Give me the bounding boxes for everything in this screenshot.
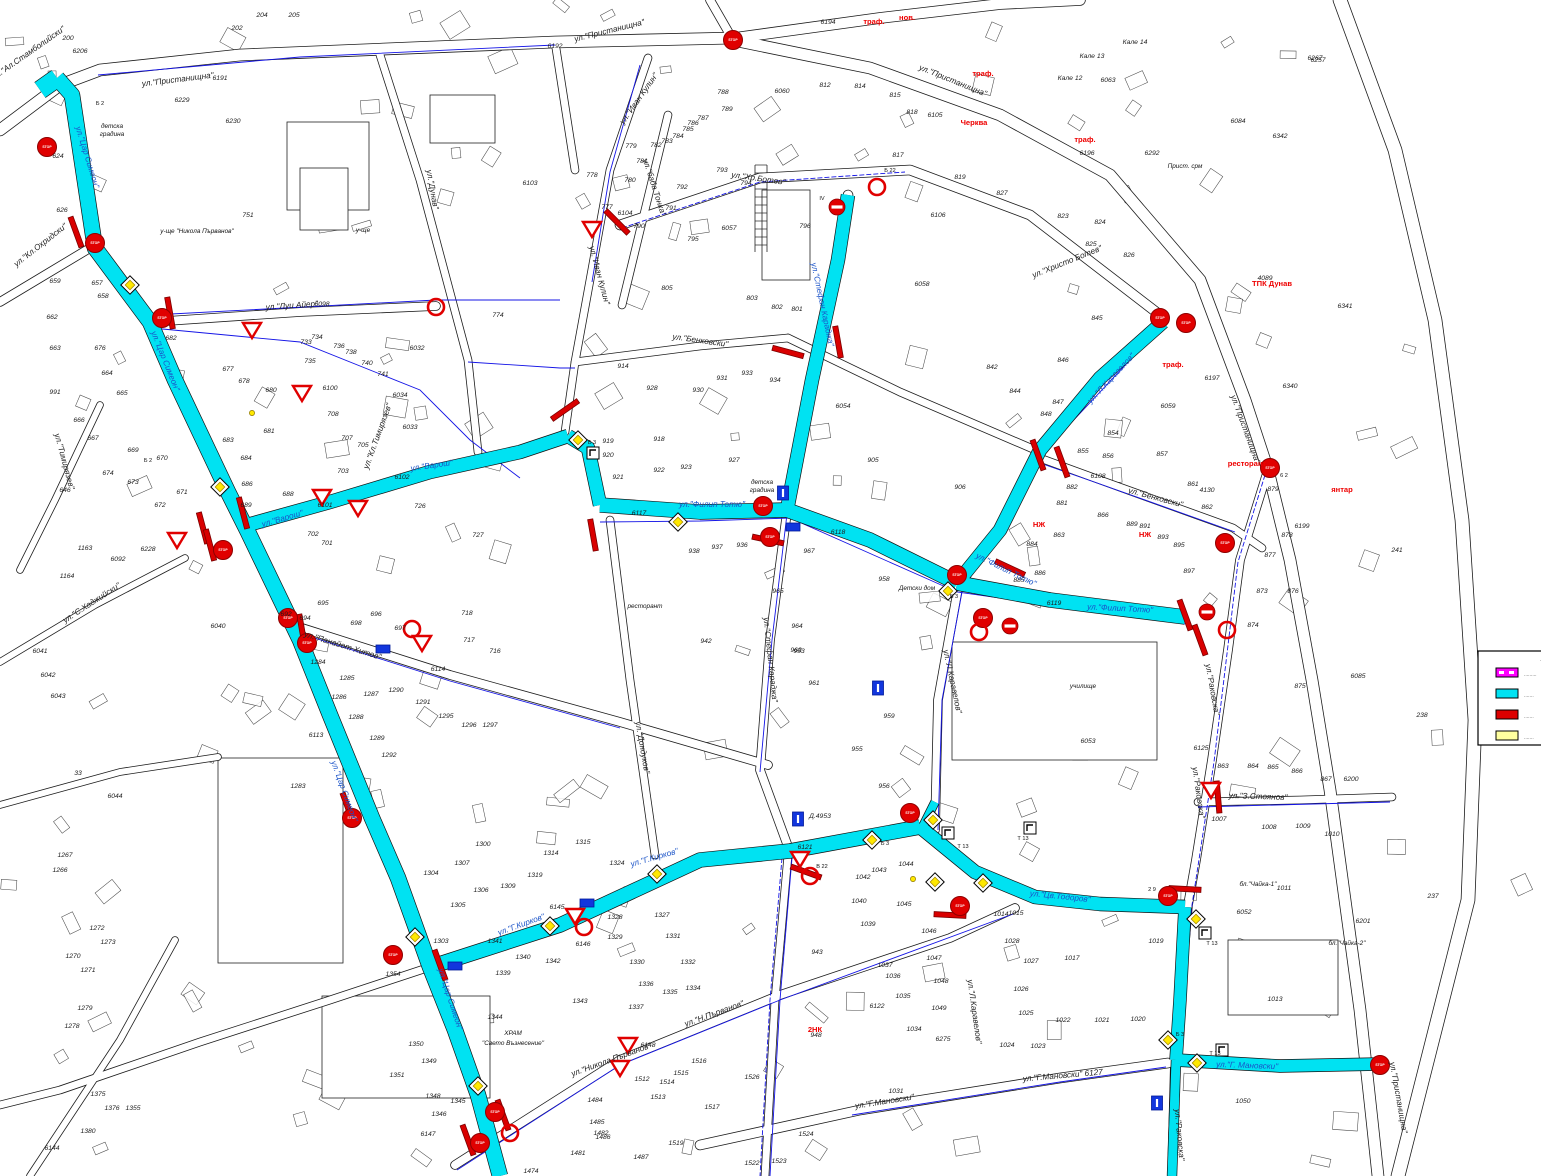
- stop-sign-icon: STOP: [1159, 887, 1178, 906]
- parcel-number-label: 1304: [423, 870, 438, 877]
- parcel-number-label: 6059: [1160, 403, 1175, 410]
- parcel-number-label: 736: [333, 343, 345, 350]
- parcel-number-label: 1332: [680, 959, 695, 966]
- info-sign-icon: [793, 812, 804, 826]
- poi-label: Прист. срм: [1168, 163, 1203, 170]
- sign-code-label: В 22: [816, 864, 828, 870]
- stop-sign-icon: STOP: [1371, 1056, 1390, 1075]
- poi-label: детска: [101, 122, 123, 130]
- poi-label: училище: [1069, 683, 1097, 690]
- parcel-number-label: 1037: [877, 962, 892, 969]
- parcel-number-label: 897: [1183, 568, 1195, 575]
- parcel-number-label: 701: [321, 540, 333, 547]
- parcel-number-label: 6194: [820, 19, 835, 26]
- svg-text:STOP: STOP: [42, 145, 52, 149]
- stop-sign-icon: STOP: [761, 528, 780, 547]
- hydrant-dot-icon: [910, 876, 915, 881]
- parcel-number-label: 847: [1052, 399, 1064, 406]
- one-way-sign-icon: [786, 523, 800, 531]
- parcel-number-label: 665: [116, 390, 128, 397]
- parcel-number-label: 1340: [515, 954, 530, 961]
- parcel-number-label: 6033: [402, 424, 417, 431]
- parcel-number-label: 667: [87, 435, 99, 442]
- parcel-number-label: 1524: [798, 1131, 813, 1138]
- parcel-number-label: 1042: [855, 874, 870, 881]
- parcel-number-label: 670: [156, 455, 168, 462]
- poi-label: у-ще "Никола Първанов": [159, 228, 234, 235]
- parcel-number-label: 866: [1291, 768, 1303, 775]
- parcel-number-label: 938: [688, 548, 700, 555]
- parcel-number-label: 1048: [933, 978, 948, 985]
- stop-sign-icon: STOP: [901, 804, 920, 823]
- parcel-number-label: 1512: [634, 1076, 649, 1083]
- parcel-number-label: 1270: [65, 953, 80, 960]
- parcel-number-label: 864: [1247, 763, 1259, 770]
- map-viewport[interactable]: STOPSTOPSTOPSTOPSTOPSTOPSTOPSTOPSTOPSTOP…: [0, 0, 1541, 1176]
- poi-label: детска: [751, 478, 773, 486]
- parcel-number-label: 933: [741, 370, 753, 377]
- parcel-number-label: 855: [1077, 448, 1089, 455]
- parcel-number-label: 796: [799, 223, 811, 230]
- poi-label: бл."Чайка-1": [1239, 880, 1277, 888]
- poi-label: градина: [100, 130, 125, 138]
- parcel-number-label: 861: [1187, 481, 1199, 488]
- parcel-number-label: 1027: [1023, 958, 1038, 965]
- one-way-sign-icon: [580, 899, 594, 907]
- parcel-number-label: 1026: [1013, 986, 1028, 993]
- parcel-number-label: 1522: [744, 1160, 759, 1167]
- parcel-number-label: 1481: [570, 1150, 585, 1157]
- parcel-number-label: 827: [996, 190, 1008, 197]
- parcel-number-label: 785: [682, 126, 694, 133]
- poi-red-label: янтар: [1331, 485, 1353, 494]
- sign-code-label: Б 2: [144, 458, 152, 464]
- sign-code-label: Б 2: [96, 101, 104, 107]
- poi-red-label: траф.: [863, 17, 884, 26]
- parcel-number-label: 698: [350, 620, 362, 627]
- parcel-number-label: 1292: [381, 752, 396, 759]
- poi-label: у-ще: [355, 227, 371, 234]
- parcel-number-label: 751: [242, 212, 254, 219]
- svg-text:STOP: STOP: [490, 1110, 500, 1114]
- poi-label: градина: [750, 486, 775, 494]
- svg-text:STOP: STOP: [955, 904, 965, 908]
- parcel-number-label: 928: [646, 385, 658, 392]
- parcel-number-label: 1485: [589, 1119, 604, 1126]
- svg-text:STOP: STOP: [218, 548, 228, 552]
- parcel-number-label: 879: [1267, 486, 1279, 493]
- map-legend: .................................: [1478, 651, 1541, 745]
- parcel-number-label: 877: [1264, 552, 1276, 559]
- parcel-number-label: 886: [1034, 570, 1046, 577]
- parcel-number-label: 705: [357, 442, 369, 449]
- parcel-number-label: 866: [1097, 512, 1109, 519]
- parcel-number-label: 6044: [107, 793, 122, 800]
- parcel-number-label: 1266: [52, 867, 67, 874]
- parcel-number-label: 863: [1217, 763, 1229, 770]
- poi-red-label: траф.: [1162, 360, 1183, 369]
- parcel-number-label: 937: [711, 544, 723, 551]
- svg-text:STOP: STOP: [90, 241, 100, 245]
- sign-code-label: 6 2: [1280, 473, 1288, 479]
- parcel-number-label: 1343: [572, 998, 587, 1005]
- parcel-number-label: 774: [492, 312, 504, 319]
- parcel-number-label: 738: [345, 349, 357, 356]
- parcel-number-label: 920: [602, 452, 614, 459]
- parcel-number-label: 795: [687, 236, 699, 243]
- stop-sign-icon: STOP: [951, 897, 970, 916]
- legend-item-label: .......: [1524, 693, 1534, 699]
- parcel-number-label: Д.4953: [808, 813, 831, 820]
- parcel-number-label: 882: [1066, 484, 1078, 491]
- parcel-number-label: 856: [1102, 453, 1114, 460]
- parcel-number-label: 6057: [721, 225, 736, 232]
- sign-code-label: Б 3: [1176, 1032, 1184, 1038]
- parcel-number-label: 683: [222, 437, 234, 444]
- parcel-number-label: 1278: [64, 1023, 79, 1030]
- svg-text:STOP: STOP: [758, 504, 768, 508]
- poi-red-label: нов.: [899, 13, 915, 22]
- parcel-number-label: 826: [1123, 252, 1135, 259]
- parcel-number-label: 673: [127, 479, 139, 486]
- parcel-number-label: 1284: [310, 659, 325, 666]
- parcel-number-label: 1271: [80, 967, 95, 974]
- parcel-number-label: 1047: [926, 955, 941, 962]
- parcel-number-label: 676: [94, 345, 106, 352]
- svg-text:STOP: STOP: [952, 573, 962, 577]
- parcel-number-label: 6040: [210, 623, 225, 630]
- parcel-number-label: 874: [1247, 622, 1259, 629]
- parcel-number-label: 1283: [290, 783, 305, 790]
- parcel-number-label: 4130: [1199, 487, 1214, 494]
- parcel-number-label: 682: [165, 335, 177, 342]
- parcel-number-label: 1008: [1261, 824, 1276, 831]
- parcel-number-label: 6053: [1080, 738, 1095, 745]
- svg-text:STOP: STOP: [765, 535, 775, 539]
- parcel-number-label: 906: [954, 484, 966, 491]
- parcel-number-label: 1315: [575, 839, 590, 846]
- svg-text:STOP: STOP: [475, 1141, 485, 1145]
- parcel-number-label: 6106: [930, 212, 945, 219]
- parcel-number-label: 6032: [409, 345, 424, 352]
- poi-red-label: НЖ: [1033, 520, 1045, 529]
- parcel-number-label: 1328: [607, 914, 622, 921]
- parcel-number-label: 6121: [797, 844, 812, 851]
- parcel-number-label: 6117: [632, 510, 647, 517]
- parcel-number-label: 1526: [744, 1074, 759, 1081]
- parcel-number-label: 848: [1040, 411, 1052, 418]
- parcel-number-label: 792: [676, 184, 688, 191]
- parcel-number-label: 884: [1026, 541, 1038, 548]
- parcel-number-label: 6101: [317, 502, 332, 509]
- parcel-number-label: 663: [49, 345, 61, 352]
- parcel-number-label: 6147: [420, 1131, 435, 1138]
- parcel-number-label: 803: [746, 295, 758, 302]
- stop-sign-icon: STOP: [384, 946, 403, 965]
- parcel-number-label: 959: [883, 713, 895, 720]
- parcel-number-label: 1272: [89, 925, 104, 932]
- parcel-number-label: 740: [361, 360, 373, 367]
- svg-text:STOP: STOP: [905, 811, 915, 815]
- parcel-number-label: 1286: [331, 694, 346, 701]
- parcel-number-label: 942: [700, 638, 712, 645]
- parcel-number-label: 1519: [668, 1140, 683, 1147]
- svg-text:STOP: STOP: [388, 953, 398, 957]
- parcel-number-label: 862: [1201, 504, 1213, 511]
- parcel-number-label: 6340: [1282, 383, 1297, 390]
- legend-item-label: .......: [1524, 735, 1534, 741]
- parcel-number-label: 33: [74, 770, 82, 777]
- parcel-number-label: 6114: [431, 666, 446, 673]
- parcel-number-label: 6084: [1230, 118, 1245, 125]
- svg-text:STOP: STOP: [1163, 894, 1173, 898]
- parcel-number-label: 6275: [935, 1036, 950, 1043]
- poi-red-label: ТПК Дунав: [1252, 279, 1292, 288]
- parcel-number-label: 1297: [482, 722, 497, 729]
- parcel-number-label: 6257: [1310, 57, 1325, 64]
- parcel-number-label: 783: [661, 138, 673, 145]
- parcel-number-label: 1290: [388, 687, 403, 694]
- parcel-number-label: 790: [633, 223, 645, 230]
- parcel-number-label: 716: [489, 648, 501, 655]
- parcel-number-label: 1376: [104, 1105, 119, 1112]
- parcel-number-label: 717: [463, 637, 475, 644]
- parcel-number-label: 6292: [1144, 150, 1159, 157]
- parcel-number-label: 657: [91, 280, 103, 287]
- poi-label: "Свето Възнесение": [482, 1040, 545, 1047]
- parcel-number-label: 936: [736, 542, 748, 549]
- parcel-number-label: 1484: [587, 1097, 602, 1104]
- parcel-number-label: 200: [61, 35, 74, 42]
- parcel-number-label: 787: [697, 115, 709, 122]
- poi-red-label: НЖ: [1139, 530, 1151, 539]
- parcel-number-label: 741: [377, 371, 389, 378]
- parcel-number-label: 1287: [363, 691, 378, 698]
- parcel-number-label: 964: [791, 623, 803, 630]
- parcel-number-label: 689: [240, 502, 252, 509]
- parcel-number-label: 1163: [78, 545, 93, 552]
- parcel-number-label: 1022: [1055, 1017, 1070, 1024]
- parcel-number-label: 863: [1053, 532, 1065, 539]
- parcel-number-label: 237: [1426, 893, 1439, 900]
- parcel-number-label: 955: [851, 746, 863, 753]
- parcel-number-label: 778: [586, 172, 598, 179]
- parcel-number-label: 6108: [1090, 473, 1105, 480]
- parcel-number-label: 875: [1294, 683, 1306, 690]
- parcel-number-label: 204: [255, 12, 268, 19]
- parcel-number-label: 681: [263, 428, 275, 435]
- parcel-number-label: 1279: [77, 1005, 92, 1012]
- signpost-marker-icon: [1024, 822, 1036, 834]
- parcel-number-label: 707: [341, 435, 353, 442]
- parcel-number-label: 1021: [1094, 1017, 1109, 1024]
- parcel-number-label: 6063: [1100, 77, 1115, 84]
- stop-sign-icon: STOP: [486, 1103, 505, 1122]
- parcel-number-label: 1023: [1030, 1043, 1045, 1050]
- parcel-number-label: 6196: [1079, 150, 1094, 157]
- parcel-number-label: 1015: [1008, 910, 1023, 917]
- parcel-number-label: 943: [811, 949, 823, 956]
- parcel-number-label: 671: [176, 489, 188, 496]
- parcel-number-label: 1345: [450, 1098, 465, 1105]
- parcel-number-label: Кале 14: [1123, 39, 1148, 46]
- parcel-number-label: 238: [1415, 712, 1428, 719]
- parcel-number-label: 963: [790, 647, 802, 654]
- parcel-number-label: 1348: [425, 1093, 440, 1100]
- parcel-number-label: 1295: [438, 713, 453, 720]
- parcel-number-label: 965: [772, 588, 784, 595]
- parcel-number-label: 1314: [543, 850, 558, 857]
- parcel-number-label: 842: [986, 364, 998, 371]
- parcel-number-label: 815: [889, 92, 901, 99]
- parcel-number-label: 793: [716, 167, 728, 174]
- parcel-number-label: 205: [287, 12, 300, 19]
- parcel-number-label: 967: [803, 548, 815, 555]
- parcel-number-label: 782: [650, 142, 662, 149]
- parcel-number-label: 991: [49, 389, 61, 396]
- poi-label: ресторант: [627, 603, 664, 610]
- parcel-number-label: 6146: [575, 941, 590, 948]
- parcel-number-label: 1350: [408, 1041, 423, 1048]
- parcel-number-label: 6058: [914, 281, 929, 288]
- parcel-number-label: 914: [617, 363, 629, 370]
- parcel-number-label: 692: [280, 611, 292, 618]
- parcel-number-label: 1040: [851, 898, 866, 905]
- parcel-number-label: 1336: [638, 981, 653, 988]
- stop-sign-icon: STOP: [471, 1134, 490, 1153]
- parcel-number-label: 1039: [860, 921, 875, 928]
- parcel-number-label: 1309: [500, 883, 515, 890]
- hydrant-dot-icon: [249, 410, 254, 415]
- parcel-number-label: 1514: [659, 1079, 674, 1086]
- parcel-number-label: 1017: [1064, 955, 1079, 962]
- parcel-number-label: Кале 12: [1058, 75, 1083, 82]
- parcel-number-label: 934: [769, 377, 781, 384]
- parcel-number-label: 881: [1056, 500, 1068, 507]
- one-way-sign-icon: [448, 962, 462, 970]
- parcel-number-label: 1516: [691, 1058, 706, 1065]
- parcel-number-label: 1523: [771, 1158, 786, 1165]
- parcel-number-label: 956: [878, 783, 890, 790]
- parcel-number-label: 857: [1156, 451, 1168, 458]
- parcel-number-label: 659: [49, 278, 61, 285]
- parcel-number-label: 6043: [50, 693, 65, 700]
- parcel-number-label: 1351: [389, 1072, 404, 1079]
- svg-text:STOP: STOP: [1220, 541, 1230, 545]
- info-sign-icon: [1152, 1096, 1163, 1110]
- stop-sign-icon: STOP: [724, 31, 743, 50]
- parcel-number-label: 889: [1126, 521, 1138, 528]
- parcel-number-label: 6092: [110, 556, 125, 563]
- parcel-number-label: 1024: [999, 1042, 1014, 1049]
- parcel-number-label: 1285: [339, 675, 354, 682]
- parcel-number-label: 905: [867, 457, 879, 464]
- parcel-number-label: 6342: [1272, 133, 1287, 140]
- parcel-number-label: 662: [46, 314, 58, 321]
- parcel-number-label: 6228: [140, 546, 155, 553]
- parcel-number-label: 1267: [57, 852, 72, 859]
- signpost-marker-icon: [942, 827, 954, 839]
- poi-red-label: 2НК: [808, 1025, 823, 1034]
- parcel-number-label: 1339: [495, 970, 510, 977]
- svg-text:STOP: STOP: [302, 641, 312, 645]
- parcel-number-label: 624: [52, 153, 64, 160]
- parcel-number-label: 1334: [685, 985, 700, 992]
- sign-code-label: Т 13: [957, 844, 968, 850]
- parcel-number-label: 1517: [704, 1104, 719, 1111]
- parcel-number-label: 6102: [394, 474, 409, 481]
- parcel-number-label: 1305: [450, 902, 465, 909]
- parcel-number-label: 674: [102, 470, 114, 477]
- parcel-number-label: 1513: [650, 1094, 665, 1101]
- parcel-number-label: 1007: [1211, 816, 1226, 823]
- parcel-number-label: 1014: [993, 911, 1008, 918]
- parcel-number-label: 1319: [527, 872, 542, 879]
- parcel-number-label: 6052: [1236, 909, 1251, 916]
- poi-red-label: траф.: [972, 69, 993, 78]
- parcel-number-label: 818: [906, 109, 918, 116]
- parcel-number-label: 789: [721, 106, 733, 113]
- parcel-number-label: 845: [1091, 315, 1103, 322]
- parcel-number-label: Кале 13: [1080, 53, 1105, 60]
- parcel-number-label: 1289: [369, 735, 384, 742]
- parcel-number-label: 695: [317, 600, 329, 607]
- parcel-number-label: 1036: [885, 973, 900, 980]
- parcel-number-label: 854: [1107, 430, 1119, 437]
- parcel-number-label: 6119: [1047, 600, 1062, 607]
- parcel-number-label: 805: [661, 285, 673, 292]
- parcel-number-label: 823: [1057, 213, 1069, 220]
- parcel-number-label: 867: [1320, 776, 1332, 783]
- parcel-number-label: 1355: [125, 1105, 140, 1112]
- parcel-number-label: 702: [307, 531, 319, 538]
- svg-text:STOP: STOP: [1181, 321, 1191, 325]
- svg-text:STOP: STOP: [728, 38, 738, 42]
- parcel-number-label: 6118: [831, 529, 846, 536]
- parcel-number-label: 824: [1094, 219, 1106, 226]
- poi-label: бл."Чайка-2": [1328, 939, 1366, 947]
- parcel-number-label: 931: [716, 375, 728, 382]
- sign-code-label: Б 3: [881, 841, 889, 847]
- parcel-number-label: 922: [653, 467, 665, 474]
- parcel-number-label: 1331: [665, 933, 680, 940]
- parcel-number-label: 1337: [628, 1004, 643, 1011]
- no-entry-sign-icon: [829, 199, 845, 215]
- parcel-number-label: 727: [472, 532, 484, 539]
- parcel-number-label: 1046: [921, 928, 936, 935]
- parcel-number-label: 1306: [473, 887, 488, 894]
- legend-item-label: .......: [1524, 714, 1534, 720]
- parcel-number-label: 1049: [931, 1005, 946, 1012]
- parcel-number-label: 686: [241, 481, 253, 488]
- parcel-number-label: 6341: [1337, 303, 1352, 310]
- parcel-number-label: 1035: [895, 993, 910, 1000]
- stop-sign-icon: STOP: [1151, 309, 1170, 328]
- parcel-number-label: 664: [101, 370, 113, 377]
- parcel-number-label: 927: [728, 457, 740, 464]
- parcel-number-label: 6200: [1343, 776, 1358, 783]
- parcel-number-label: 1329: [607, 934, 622, 941]
- parcel-number-label: 202: [230, 25, 243, 32]
- parcel-number-label: 696: [370, 611, 382, 618]
- svg-text:STOP: STOP: [157, 316, 167, 320]
- parcel-number-label: 6192: [547, 43, 562, 50]
- parcel-number-label: 6230: [225, 118, 240, 125]
- sign-code-label: Б 22: [884, 168, 895, 174]
- cadastral-map[interactable]: STOPSTOPSTOPSTOPSTOPSTOPSTOPSTOPSTOPSTOP…: [0, 0, 1541, 1176]
- parcel-number-label: 1307: [454, 860, 469, 867]
- parcel-number-label: 6085: [1350, 673, 1365, 680]
